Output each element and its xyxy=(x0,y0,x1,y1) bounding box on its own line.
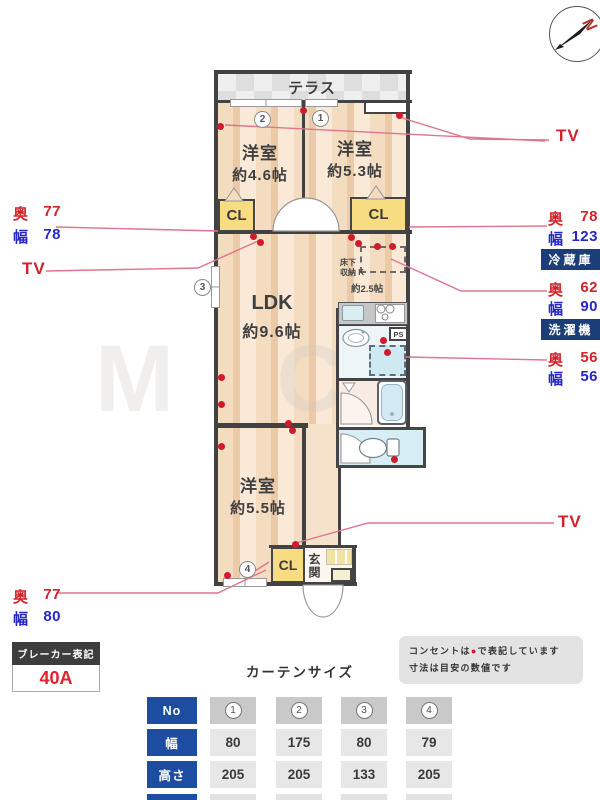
pipe-space: PS xyxy=(389,327,408,341)
outlet-dot-icon xyxy=(396,112,403,119)
note-line-1: コンセントは●で表記しています xyxy=(409,643,573,660)
ldk-name: LDK xyxy=(222,292,322,315)
outlet-dot-icon xyxy=(300,107,307,114)
dim-closet-bottom-width: 幅 80 xyxy=(13,608,61,629)
dim-closet-right-depth: 奥 78 xyxy=(548,208,598,229)
table-col-header-3: 3 xyxy=(341,697,387,724)
window-3 xyxy=(211,266,220,308)
dim-closet-right-width: 幅 123 xyxy=(548,228,598,249)
wall xyxy=(352,548,356,586)
curtain-marker-2: 2 xyxy=(254,111,271,128)
dim-washer-depth: 奥 56 xyxy=(548,349,598,370)
wall xyxy=(406,70,410,430)
washer-badge: 洗濯機 xyxy=(541,319,600,340)
outlet-dot-icon xyxy=(384,349,391,356)
compass-needle-icon xyxy=(555,19,593,50)
depth-value: 77 xyxy=(43,203,61,224)
window-4 xyxy=(223,578,267,587)
kitchen-size-label: 約2.5帖 xyxy=(351,285,383,295)
outlet-dot-icon xyxy=(217,123,224,130)
width-char: 幅 xyxy=(13,226,29,247)
breaker-value: 40A xyxy=(12,665,100,692)
outlet-dot-icon xyxy=(380,337,387,344)
closet-bottom: CL xyxy=(271,547,305,583)
curtain-marker-1: 1 xyxy=(312,110,329,127)
outlet-dot-icon xyxy=(224,572,231,579)
outlet-dot-icon xyxy=(257,239,264,246)
bedroom-tl-size: 約4.6帖 xyxy=(210,164,310,185)
depth-value: 56 xyxy=(580,349,598,370)
depth-char: 奥 xyxy=(13,586,29,607)
table-cell: 80 xyxy=(210,729,256,756)
underfloor-storage-label-1: 床下 xyxy=(340,259,356,268)
outlet-dot-icon xyxy=(391,456,398,463)
window-1 xyxy=(305,99,338,107)
table-cutoff-cell xyxy=(147,794,197,800)
width-value: 56 xyxy=(580,368,598,389)
width-value: 123 xyxy=(571,228,598,249)
wall xyxy=(338,465,341,548)
table-cell: 175 xyxy=(276,729,322,756)
outlet-dot-icon xyxy=(355,240,362,247)
ldk-size: 約9.6帖 xyxy=(222,318,322,342)
breaker-title: ブレーカー表記 xyxy=(12,642,100,665)
outlet-dot-icon xyxy=(348,234,355,241)
table-row-header-height: 高さ xyxy=(147,761,197,788)
dim-fridge-width: 幅 90 xyxy=(548,298,598,319)
width-char: 幅 xyxy=(548,228,564,249)
circled-4: 4 xyxy=(421,702,438,719)
bathroom-anteroom-floor xyxy=(339,381,377,425)
table-cell: 205 xyxy=(406,761,452,788)
outlet-dot-icon xyxy=(218,401,225,408)
outlet-dot-icon xyxy=(218,443,225,450)
entrance-door-arc xyxy=(303,585,343,617)
bedroom-b-size: 約5.5帖 xyxy=(208,497,308,518)
table-cutoff-cell xyxy=(276,794,322,800)
curtain-marker-3: 3 xyxy=(194,279,211,296)
tv-label-bottom: TV xyxy=(558,512,582,532)
depth-char: 奥 xyxy=(548,349,564,370)
width-value: 78 xyxy=(43,226,61,247)
table-row-header-width: 幅 xyxy=(147,729,197,756)
outlet-symbol-icon: ● xyxy=(471,646,478,656)
table-col-header-4: 4 xyxy=(406,697,452,724)
bedroom-tl-name: 洋室 xyxy=(210,139,310,164)
north-label: N xyxy=(579,15,600,35)
closet-top-left: CL xyxy=(218,199,255,232)
curtain-table-title: カーテンサイズ xyxy=(225,661,375,681)
table-cutoff-cell xyxy=(406,794,452,800)
dim-closet-left-width: 幅 78 xyxy=(13,226,61,247)
dim-washer-width: 幅 56 xyxy=(548,368,598,389)
width-value: 90 xyxy=(580,298,598,319)
depth-value: 78 xyxy=(580,208,598,229)
breaker-box: ブレーカー表記 40A xyxy=(12,642,100,692)
stove xyxy=(375,304,405,323)
circled-1: 1 xyxy=(225,702,242,719)
closet-top-right: CL xyxy=(350,197,407,232)
compass: N xyxy=(549,6,600,62)
outlet-dot-icon xyxy=(218,374,225,381)
fridge-badge: 冷蔵庫 xyxy=(541,249,600,270)
depth-char: 奥 xyxy=(548,279,564,300)
tv-label-left: TV xyxy=(22,259,46,279)
depth-value: 62 xyxy=(580,279,598,300)
width-char: 幅 xyxy=(548,368,564,389)
entrance-tile xyxy=(326,549,352,565)
sink xyxy=(342,305,364,321)
bathtub-inner xyxy=(381,384,403,421)
width-char: 幅 xyxy=(548,298,564,319)
circled-2: 2 xyxy=(291,702,308,719)
outlet-dot-icon xyxy=(289,427,296,434)
dim-fridge-depth: 奥 62 xyxy=(548,279,598,300)
outlet-dot-icon xyxy=(389,243,396,250)
table-cell: 205 xyxy=(276,761,322,788)
entrance-label: 玄関 xyxy=(307,550,323,582)
curtain-marker-4: 4 xyxy=(239,561,256,578)
refrigerator-space xyxy=(360,246,406,273)
outlet-dot-icon xyxy=(285,420,292,427)
floorplan-page: M C N CL CL CL PS xyxy=(0,0,600,800)
outlet-note: コンセントは●で表記しています 寸法は目安の数値です xyxy=(399,636,583,684)
depth-value: 77 xyxy=(43,586,61,607)
dim-closet-bottom-depth: 奥 77 xyxy=(13,586,61,607)
depth-char: 奥 xyxy=(548,208,564,229)
bedroom-b-name: 洋室 xyxy=(208,472,308,497)
table-cell: 133 xyxy=(341,761,387,788)
outlet-dot-icon xyxy=(374,243,381,250)
note-line-2: 寸法は目安の数値です xyxy=(409,660,573,677)
dim-closet-left-depth: 奥 77 xyxy=(13,203,61,224)
shoe-cabinet xyxy=(331,568,352,582)
width-value: 80 xyxy=(43,608,61,629)
underfloor-storage-label-2: 収納 K xyxy=(340,269,364,278)
window-2 xyxy=(230,99,302,107)
bedroom-tr-size: 約5.3帖 xyxy=(305,160,405,181)
toilet-room xyxy=(336,427,426,468)
depth-char: 奥 xyxy=(13,203,29,224)
table-row-header-no: No xyxy=(147,697,197,724)
table-cutoff-cell xyxy=(210,794,256,800)
wall xyxy=(214,70,412,74)
table-col-header-2: 2 xyxy=(276,697,322,724)
table-cell: 205 xyxy=(210,761,256,788)
table-col-header-1: 1 xyxy=(210,697,256,724)
table-cell: 79 xyxy=(406,729,452,756)
outlet-dot-icon xyxy=(250,233,257,240)
circled-3: 3 xyxy=(356,702,373,719)
width-char: 幅 xyxy=(13,608,29,629)
table-cell: 80 xyxy=(341,729,387,756)
outlet-dot-icon xyxy=(292,541,299,548)
corridor-floor xyxy=(304,424,338,548)
tv-label-right: TV xyxy=(556,126,580,146)
bedroom-tr-name: 洋室 xyxy=(305,135,405,160)
terrace-label: テラス xyxy=(262,77,362,98)
table-cutoff-cell xyxy=(341,794,387,800)
